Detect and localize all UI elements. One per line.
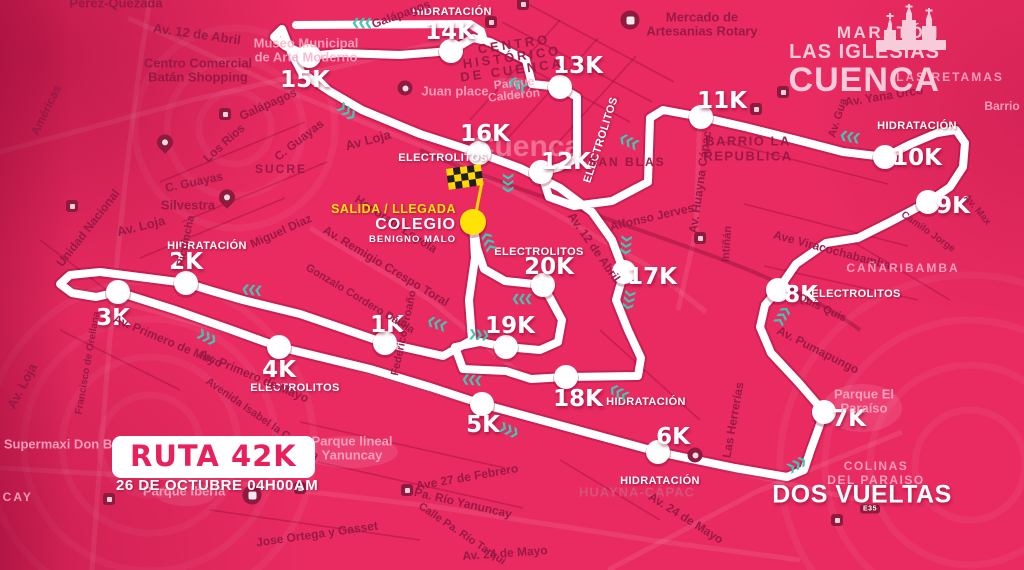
salida-llegada-label: SALIDA / LLEGADA <box>0 202 456 216</box>
street-label: Supermaxi Don Bo <box>4 437 120 452</box>
poi-dot-icon <box>688 448 703 463</box>
poi-pin-icon <box>154 131 177 154</box>
street-label: Yanuncay <box>322 448 383 463</box>
map-canvas: 1K2K3K4K5K6K7K8K9K10K11K12K13K14K15K16K1… <box>0 0 1024 570</box>
street-label: Av. Pumapungo <box>775 323 862 376</box>
direction-arrow-icon: ❯❯❯ <box>785 455 807 474</box>
direction-arrow-icon: ❯❯❯ <box>513 294 532 305</box>
street-label: Av. 12 de Abril <box>152 20 242 47</box>
direction-arrow-icon: ❯❯❯ <box>503 172 514 191</box>
route-badge: RUTA 42K <box>112 436 315 478</box>
street-label: Juan place <box>421 84 488 99</box>
km-label-6k: 6K <box>656 424 690 450</box>
street-label: REPUBLICA <box>703 149 792 164</box>
direction-arrow-icon: ❯❯❯ <box>772 306 791 328</box>
poi-dot-lg-icon <box>621 11 640 30</box>
street-label: YANUNCAY <box>0 490 33 504</box>
station-label-electrolitos: ELECTROLITOS <box>494 246 584 258</box>
street-label: Intiñán <box>720 226 734 263</box>
street-label: de Arte Moderno <box>255 50 358 65</box>
direction-arrow-icon: ❯❯❯ <box>468 329 488 342</box>
km-label-11k: 11K <box>697 88 747 114</box>
direction-arrow-icon: ❯❯❯ <box>353 18 372 29</box>
direction-arrow-icon: ❯❯❯ <box>841 130 862 144</box>
street-label: Américas <box>28 83 64 138</box>
direction-arrow-icon: ❯❯❯ <box>427 316 449 333</box>
km-label-17k: 17K <box>627 264 677 290</box>
street-label: Artesanias Rotary <box>646 24 757 39</box>
km-label-5k: 5K <box>466 412 500 438</box>
street-label: Barrio <box>984 99 1019 113</box>
poi-sq-icon <box>517 0 529 10</box>
direction-arrow-icon: ❯❯❯ <box>481 232 498 254</box>
street-label: Perez-Quezada <box>69 0 162 11</box>
street-label: Cuenca <box>473 130 581 164</box>
street-label: Centro Comercial <box>144 56 252 71</box>
colegio-label: COLEGIO <box>0 216 456 234</box>
street-label: Paraíso <box>841 401 888 416</box>
poi-sq-icon <box>694 232 706 244</box>
benigno-malo-label: BENIGNO MALO <box>0 235 456 246</box>
street-label: HUAYNA-CÁPAC <box>579 485 695 500</box>
street-label: Mercado de <box>666 10 738 25</box>
street-label: Av. Loja <box>4 361 40 411</box>
poi-sq-icon <box>485 16 497 28</box>
km-label-18k: 18K <box>553 386 603 412</box>
poi-dot-icon <box>398 81 413 96</box>
street-label: Parque El <box>834 387 894 402</box>
direction-arrow-icon: ❯❯❯ <box>243 284 263 297</box>
street-label: Museo Municipal <box>254 36 359 51</box>
poi-sq-icon <box>219 108 231 120</box>
street-label: COLINAS <box>844 459 909 473</box>
logo-line-maraton: MARATÓN <box>789 24 940 42</box>
street-label: C. Guayas <box>272 116 327 163</box>
station-label-electrolitos: ELECTROLITOS <box>581 96 620 185</box>
km-label-14k: 14K <box>425 19 475 45</box>
direction-arrow-icon: ❯❯❯ <box>463 374 483 387</box>
poi-sq-icon <box>750 103 762 115</box>
direction-arrow-icon: ❯❯❯ <box>622 289 636 310</box>
route-badge-label: RUTA 42K <box>130 439 297 473</box>
street-label: BARRIO LA <box>705 134 791 149</box>
street-label: Jose Ortega y Gasset <box>255 519 378 550</box>
poi-sq-icon <box>103 493 115 505</box>
poi-sq-icon <box>777 86 789 98</box>
event-datetime: 26 DE OCTUBRE 04H00AM <box>116 477 318 494</box>
logo-line-iglesias: LAS IGLESIAS <box>789 42 940 63</box>
street-label: Alfonso Jerves <box>609 201 696 234</box>
street-label: SAN BLAS <box>588 155 665 169</box>
km-label-10k: 10K <box>892 145 942 171</box>
direction-arrow-icon: ❯❯❯ <box>335 101 357 122</box>
street-label: Los Rios <box>200 121 247 165</box>
direction-arrow-icon: ❯❯❯ <box>620 234 633 254</box>
street-label: Francisco de Orellana <box>74 311 103 416</box>
street-label: Batán Shopping <box>148 70 248 85</box>
street-label: Las Herrerías <box>719 381 746 459</box>
street-label: Av Loja <box>344 127 393 154</box>
street-label: Parque lineal <box>312 434 393 449</box>
station-label-electrolitos: ELECTROLITOS <box>811 288 901 300</box>
street-label: CAÑARIBAMBA <box>846 261 959 275</box>
start-finish-labels: SALIDA / LLEGADA COLEGIO BENIGNO MALO <box>0 202 456 246</box>
poi-sq-icon <box>401 484 413 496</box>
direction-arrow-icon: ❯❯❯ <box>497 421 519 439</box>
direction-arrow-icon: ❯❯❯ <box>619 133 641 151</box>
street-label: Av. Huayna Cápac <box>686 130 714 234</box>
street-label: SUCRE <box>255 162 307 176</box>
street-label: C. Guayas <box>164 169 224 195</box>
street-label: Galápagos <box>237 85 299 123</box>
logo-line-cuenca: CUENCA <box>789 63 940 99</box>
km-label-19k: 19K <box>485 313 535 339</box>
station-label-hidratación: HIDRATACIÓN <box>877 120 957 132</box>
event-logo: MARATÓN LAS IGLESIAS CUENCA <box>789 24 940 99</box>
laps-note: DOS VUELTAS <box>772 481 952 510</box>
direction-arrow-icon: ❯❯❯ <box>195 328 217 347</box>
poi-sq-icon <box>831 514 843 526</box>
